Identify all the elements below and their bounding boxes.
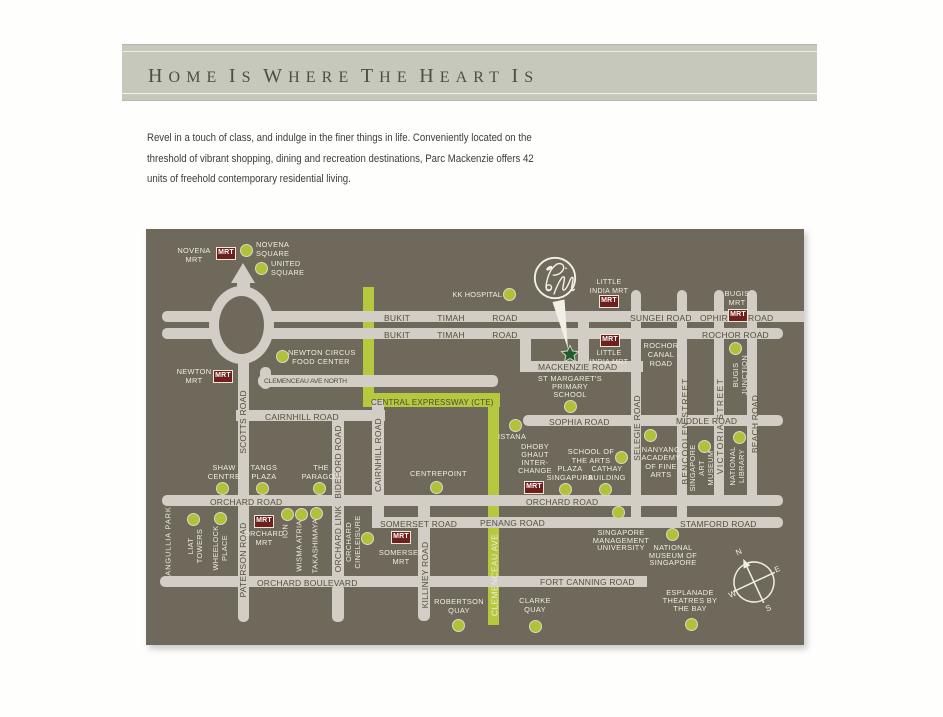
svg-text:S: S (764, 603, 773, 613)
svg-text:N: N (734, 547, 743, 558)
